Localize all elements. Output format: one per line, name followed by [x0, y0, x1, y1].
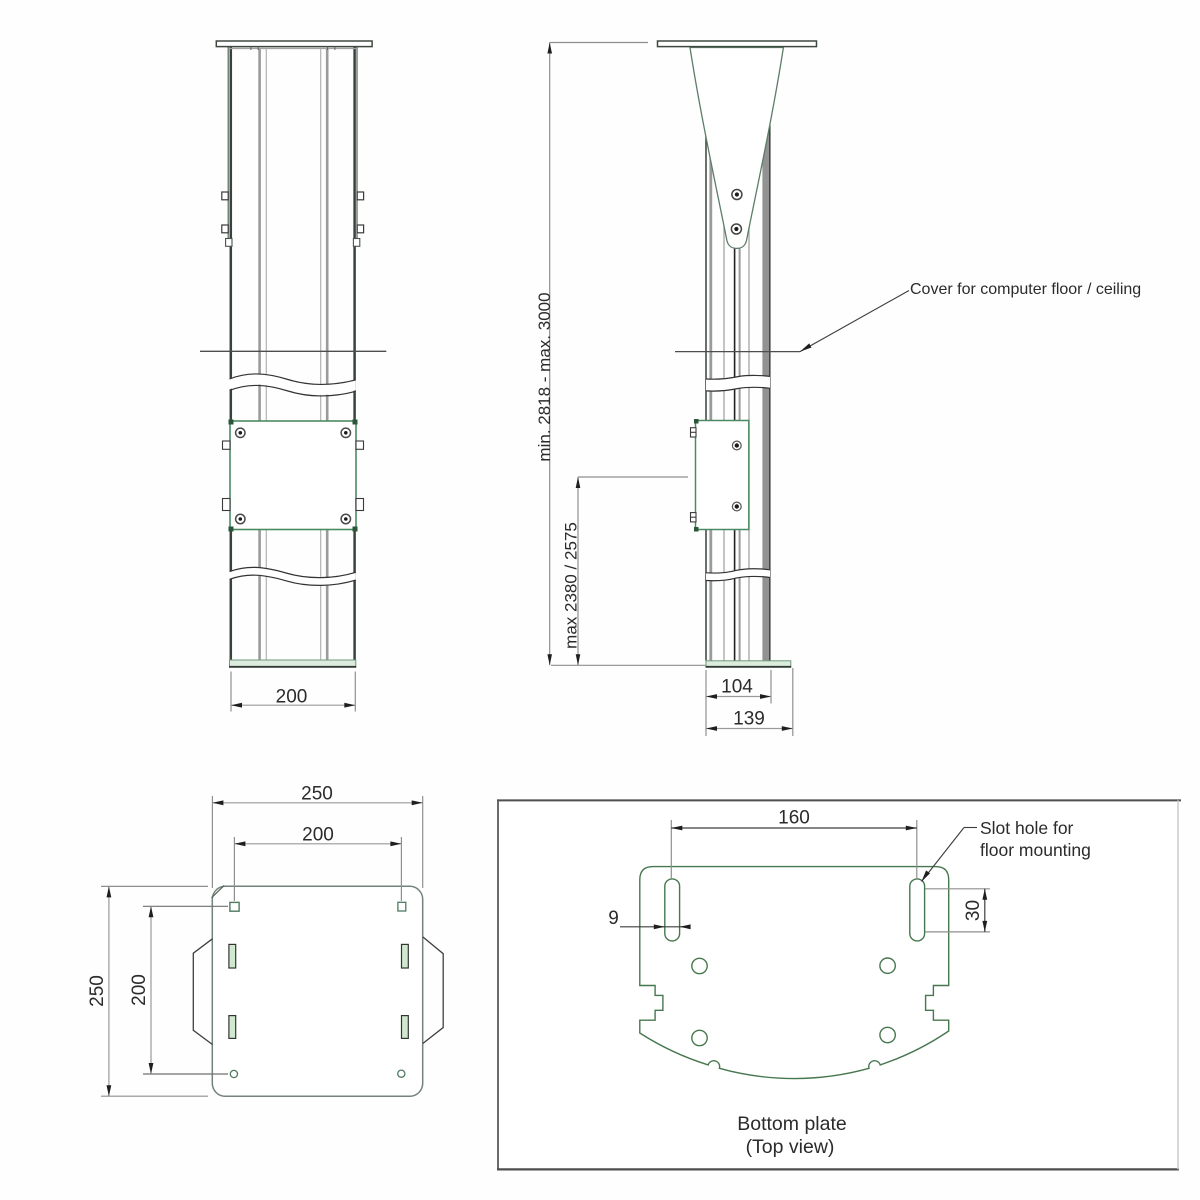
svg-text:104: 104 — [721, 677, 753, 698]
svg-text:250: 250 — [301, 784, 333, 805]
svg-text:floor mounting: floor mounting — [980, 840, 1091, 860]
svg-text:250: 250 — [87, 975, 108, 1007]
svg-text:min. 2818 - max. 3000: min. 2818 - max. 3000 — [535, 292, 554, 461]
svg-text:200: 200 — [129, 974, 150, 1006]
svg-text:30: 30 — [963, 900, 984, 921]
svg-text:(Top view): (Top view) — [746, 1136, 835, 1158]
svg-text:139: 139 — [733, 709, 765, 730]
svg-text:9: 9 — [608, 908, 619, 929]
svg-text:Cover for computer floor / cei: Cover for computer floor / ceiling — [910, 281, 1141, 298]
svg-text:200: 200 — [276, 687, 308, 708]
svg-text:max 2380 / 2575: max 2380 / 2575 — [562, 522, 581, 649]
svg-text:Slot hole for: Slot hole for — [980, 818, 1074, 838]
svg-text:Bottom plate: Bottom plate — [737, 1113, 846, 1135]
svg-text:200: 200 — [302, 825, 334, 846]
svg-text:160: 160 — [778, 808, 810, 829]
